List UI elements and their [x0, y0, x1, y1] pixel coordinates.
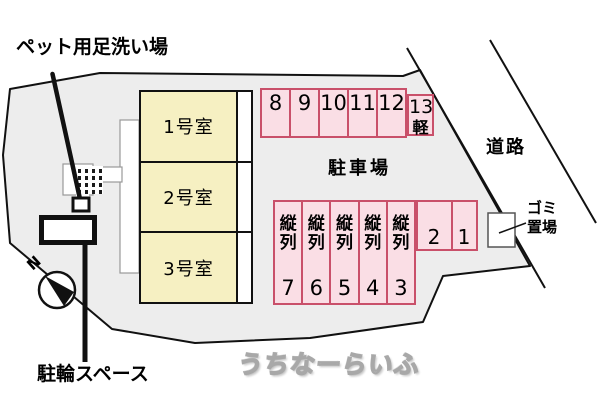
parking-space-4-number: 4 — [366, 278, 379, 299]
parking-space-11: 11 — [349, 90, 378, 136]
parking-row-top: 8 9 10 11 12 — [260, 88, 407, 138]
room-2-porch — [238, 163, 251, 232]
parking-space-5: 縦列 5 — [331, 202, 359, 303]
parking-space-6-type: 縦列 — [307, 215, 325, 252]
walkway — [120, 120, 139, 273]
parking-space-7-type: 縦列 — [279, 215, 297, 252]
bicycle-parking-area — [42, 218, 95, 243]
garbage-label: ゴミ 置場 — [527, 201, 557, 235]
parking-space-10: 10 — [320, 90, 349, 136]
bicycle-space-label: 駐輪スペース — [37, 365, 149, 384]
room-1: 1号室 — [141, 92, 251, 163]
parking-space-3-type: 縦列 — [392, 215, 410, 252]
parking-space-3-number: 3 — [394, 278, 407, 299]
watermark-logo: うちなーらいふ — [236, 352, 422, 377]
room-2: 2号室 — [141, 163, 251, 234]
garbage-label-line1: ゴミ — [527, 201, 557, 216]
room-2-label: 2号室 — [141, 163, 238, 232]
parking-space-1: 1 — [453, 202, 476, 249]
parking-space-5-number: 5 — [338, 278, 351, 299]
parking-row-front: 2 1 — [416, 200, 478, 251]
parking-space-13-number: 13 — [409, 96, 432, 117]
pet-wash-station — [73, 198, 89, 211]
parking-space-4: 縦列 4 — [360, 202, 388, 303]
room-3-porch — [238, 233, 251, 302]
parking-space-6-number: 6 — [310, 278, 323, 299]
parking-space-9: 9 — [291, 90, 320, 136]
garbage-box — [488, 213, 515, 247]
parking-space-12: 12 — [378, 90, 405, 136]
parking-space-6: 縦列 6 — [303, 202, 331, 303]
room-1-porch — [238, 92, 251, 161]
parking-space-8: 8 — [262, 90, 291, 136]
room-3-label: 3号室 — [141, 233, 238, 302]
site-plan: 1号室 2号室 3号室 8 9 10 11 12 13 軽 縦列 7 縦列 6 — [0, 0, 600, 400]
parking-lot-label: 駐車場 — [328, 160, 391, 178]
parking-space-7-number: 7 — [281, 278, 294, 299]
road-label: 道路 — [486, 139, 526, 157]
room-1-label: 1号室 — [141, 92, 238, 161]
parking-space-7: 縦列 7 — [275, 202, 303, 303]
parking-row-tandem: 縦列 7 縦列 6 縦列 5 縦列 4 縦列 3 — [273, 200, 416, 305]
road-edge-right-line — [490, 40, 596, 223]
parking-space-5-type: 縦列 — [336, 215, 354, 252]
parking-space-3: 縦列 3 — [388, 202, 414, 303]
apartment-building: 1号室 2号室 3号室 — [139, 90, 253, 304]
parking-space-2: 2 — [418, 202, 453, 249]
room-3: 3号室 — [141, 233, 251, 302]
pet-wash-label: ペット用足洗い場 — [16, 38, 168, 57]
garbage-label-line2: 置場 — [527, 220, 557, 235]
parking-space-13-kei: 13 軽 — [407, 94, 434, 136]
parking-space-13-type: 軽 — [409, 117, 432, 136]
parking-space-4-type: 縦列 — [364, 215, 382, 252]
